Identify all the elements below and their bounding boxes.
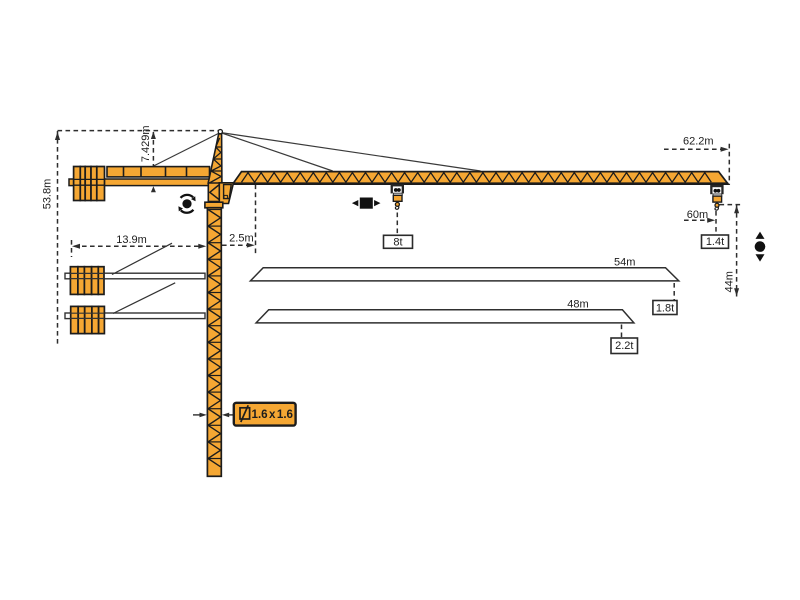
svg-text:1.4t: 1.4t: [706, 236, 724, 248]
svg-text:2.5m: 2.5m: [229, 232, 253, 244]
svg-text:44m: 44m: [724, 271, 736, 292]
svg-text:53.8m: 53.8m: [42, 179, 54, 210]
svg-text:54m: 54m: [614, 257, 635, 269]
svg-text:62.2m: 62.2m: [683, 136, 714, 148]
svg-text:48m: 48m: [567, 299, 588, 311]
svg-text:60m: 60m: [687, 209, 708, 221]
svg-text:2.2t: 2.2t: [615, 340, 633, 352]
svg-text:1.6x1.6: 1.6x1.6: [252, 408, 294, 421]
svg-text:1.8t: 1.8t: [656, 302, 674, 314]
svg-text:7.429m: 7.429m: [140, 125, 152, 162]
svg-text:8t: 8t: [393, 236, 402, 248]
svg-text:13.9m: 13.9m: [116, 234, 147, 246]
